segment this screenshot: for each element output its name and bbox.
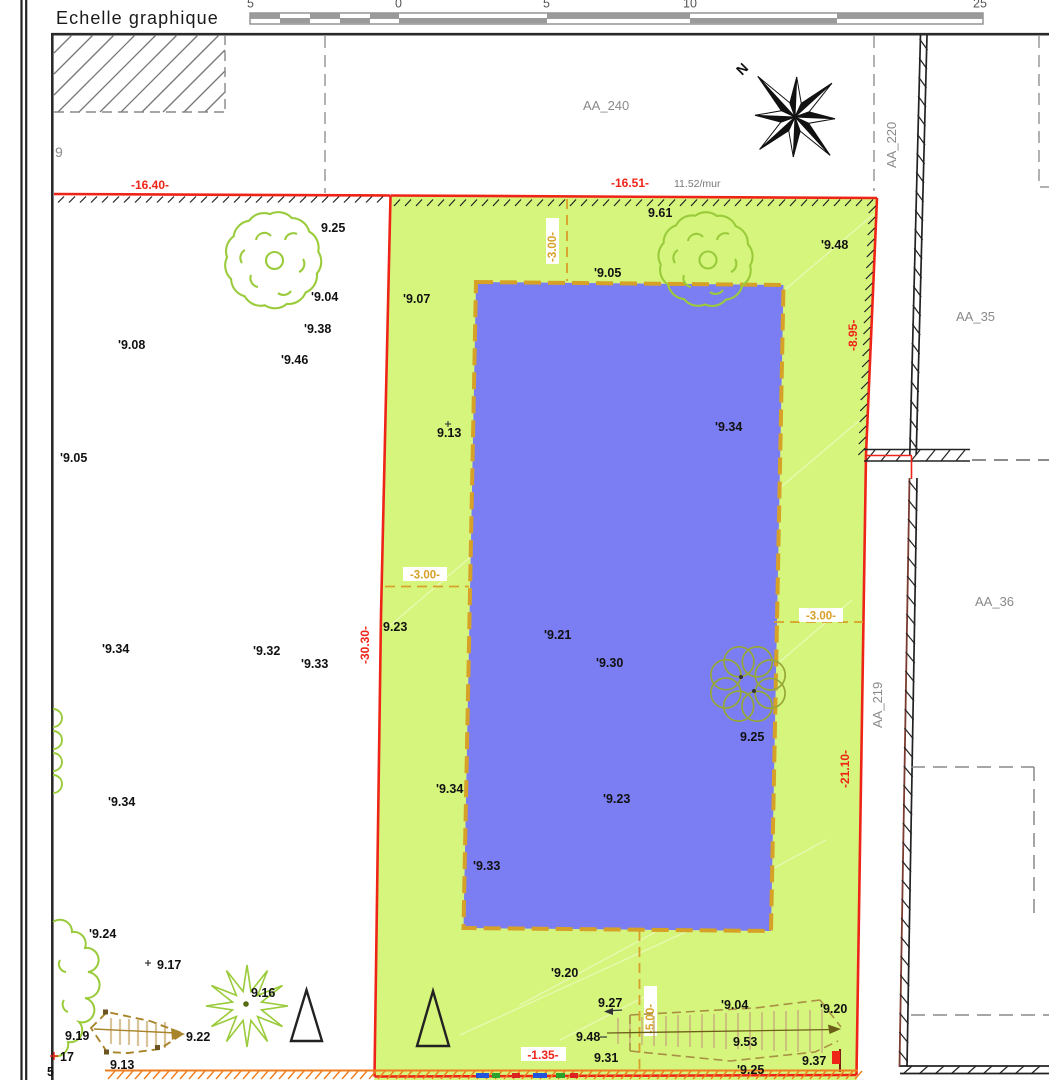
svg-text:25: 25 bbox=[973, 0, 987, 11]
svg-text:'9.33: '9.33 bbox=[473, 859, 500, 873]
svg-text:9.25: 9.25 bbox=[321, 221, 345, 235]
svg-text:9.27: 9.27 bbox=[598, 996, 622, 1010]
svg-text:-5.00-: -5.00- bbox=[645, 1004, 657, 1034]
svg-text:'9.05: '9.05 bbox=[594, 266, 621, 280]
svg-text:'9.25: '9.25 bbox=[737, 1063, 764, 1077]
svg-text:'9.05: '9.05 bbox=[60, 451, 87, 465]
svg-text:'9.20: '9.20 bbox=[551, 966, 578, 980]
svg-text:9.25: 9.25 bbox=[740, 730, 764, 744]
svg-text:-8.95-: -8.95- bbox=[846, 320, 860, 351]
svg-text:'9.21: '9.21 bbox=[544, 628, 571, 642]
svg-text:AA_35: AA_35 bbox=[956, 309, 995, 324]
svg-text:9.19: 9.19 bbox=[65, 1029, 89, 1043]
svg-text:9.13: 9.13 bbox=[110, 1058, 134, 1072]
svg-text:'9.34: '9.34 bbox=[108, 795, 135, 809]
svg-text:-1.35-: -1.35- bbox=[527, 1048, 558, 1062]
svg-text:5: 5 bbox=[247, 0, 254, 11]
svg-text:'9.34: '9.34 bbox=[102, 642, 129, 656]
svg-text:10: 10 bbox=[683, 0, 697, 11]
svg-text:17: 17 bbox=[60, 1050, 74, 1064]
svg-text:9.31: 9.31 bbox=[594, 1051, 618, 1065]
svg-text:-3.00-: -3.00- bbox=[806, 611, 836, 623]
svg-text:9.13: 9.13 bbox=[437, 426, 461, 440]
svg-text:'9.48: '9.48 bbox=[821, 238, 848, 252]
svg-text:'9.46: '9.46 bbox=[281, 353, 308, 367]
svg-text:9.23: 9.23 bbox=[383, 620, 407, 634]
svg-text:AA_36: AA_36 bbox=[975, 594, 1014, 609]
svg-text:9: 9 bbox=[55, 144, 63, 160]
svg-text:'9.33: '9.33 bbox=[301, 657, 328, 671]
svg-text:AA_219: AA_219 bbox=[870, 682, 885, 728]
svg-text:-16.40-: -16.40- bbox=[131, 178, 169, 192]
svg-text:0: 0 bbox=[395, 0, 402, 11]
svg-text:'9.34: '9.34 bbox=[436, 782, 463, 796]
svg-text:5: 5 bbox=[47, 1065, 54, 1079]
svg-text:-30.30-: -30.30- bbox=[358, 626, 372, 664]
svg-text:-3.00-: -3.00- bbox=[547, 232, 559, 262]
svg-text:'9.38: '9.38 bbox=[304, 322, 331, 336]
svg-text:11.52/mur: 11.52/mur bbox=[674, 178, 721, 190]
svg-text:'9.08: '9.08 bbox=[118, 338, 145, 352]
svg-text:9.22: 9.22 bbox=[186, 1030, 210, 1044]
svg-text:9.48: 9.48 bbox=[576, 1030, 600, 1044]
svg-text:AA_240: AA_240 bbox=[583, 98, 629, 113]
svg-text:'9.04: '9.04 bbox=[721, 998, 748, 1012]
svg-text:'9.23: '9.23 bbox=[603, 792, 630, 806]
svg-text:-16.51-: -16.51- bbox=[611, 176, 649, 190]
svg-text:5: 5 bbox=[543, 0, 550, 11]
svg-text:9.53: 9.53 bbox=[733, 1035, 757, 1049]
svg-text:-3.00-: -3.00- bbox=[410, 570, 440, 582]
svg-text:9.17: 9.17 bbox=[157, 958, 181, 972]
svg-text:'9.30: '9.30 bbox=[596, 656, 623, 670]
svg-text:9.16: 9.16 bbox=[251, 986, 275, 1000]
svg-text:'9.24: '9.24 bbox=[89, 927, 116, 941]
svg-text:'9.20: '9.20 bbox=[820, 1002, 847, 1016]
svg-text:'9.32: '9.32 bbox=[253, 644, 280, 658]
svg-text:9.37: 9.37 bbox=[802, 1054, 826, 1068]
svg-text:-21.10-: -21.10- bbox=[838, 750, 852, 788]
svg-text:Echelle graphique: Echelle graphique bbox=[56, 8, 219, 28]
svg-text:'9.34: '9.34 bbox=[715, 420, 742, 434]
svg-text:'9.07: '9.07 bbox=[403, 292, 430, 306]
svg-text:AA_220: AA_220 bbox=[884, 122, 899, 168]
svg-text:'9.04: '9.04 bbox=[311, 290, 338, 304]
svg-text:9.61: 9.61 bbox=[648, 206, 672, 220]
